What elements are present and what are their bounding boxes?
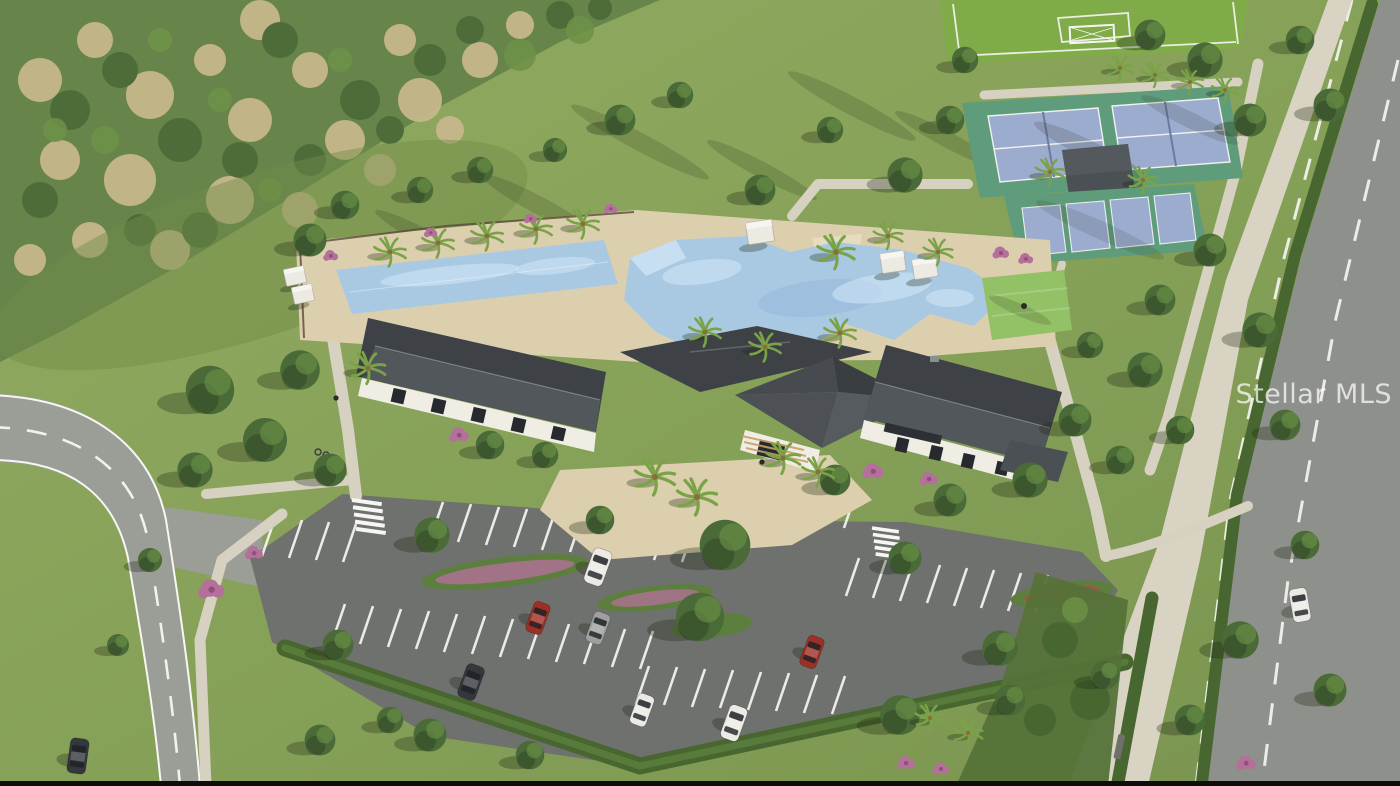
roof-vent xyxy=(930,356,939,362)
bottom-border xyxy=(0,781,1400,786)
aerial-rendering: Stellar MLS xyxy=(0,0,1400,786)
person xyxy=(333,395,338,400)
screenshot: Stellar MLS xyxy=(0,0,1400,786)
event-lawn xyxy=(982,270,1072,340)
watermark: Stellar MLS xyxy=(1235,379,1392,410)
person xyxy=(1021,303,1027,309)
